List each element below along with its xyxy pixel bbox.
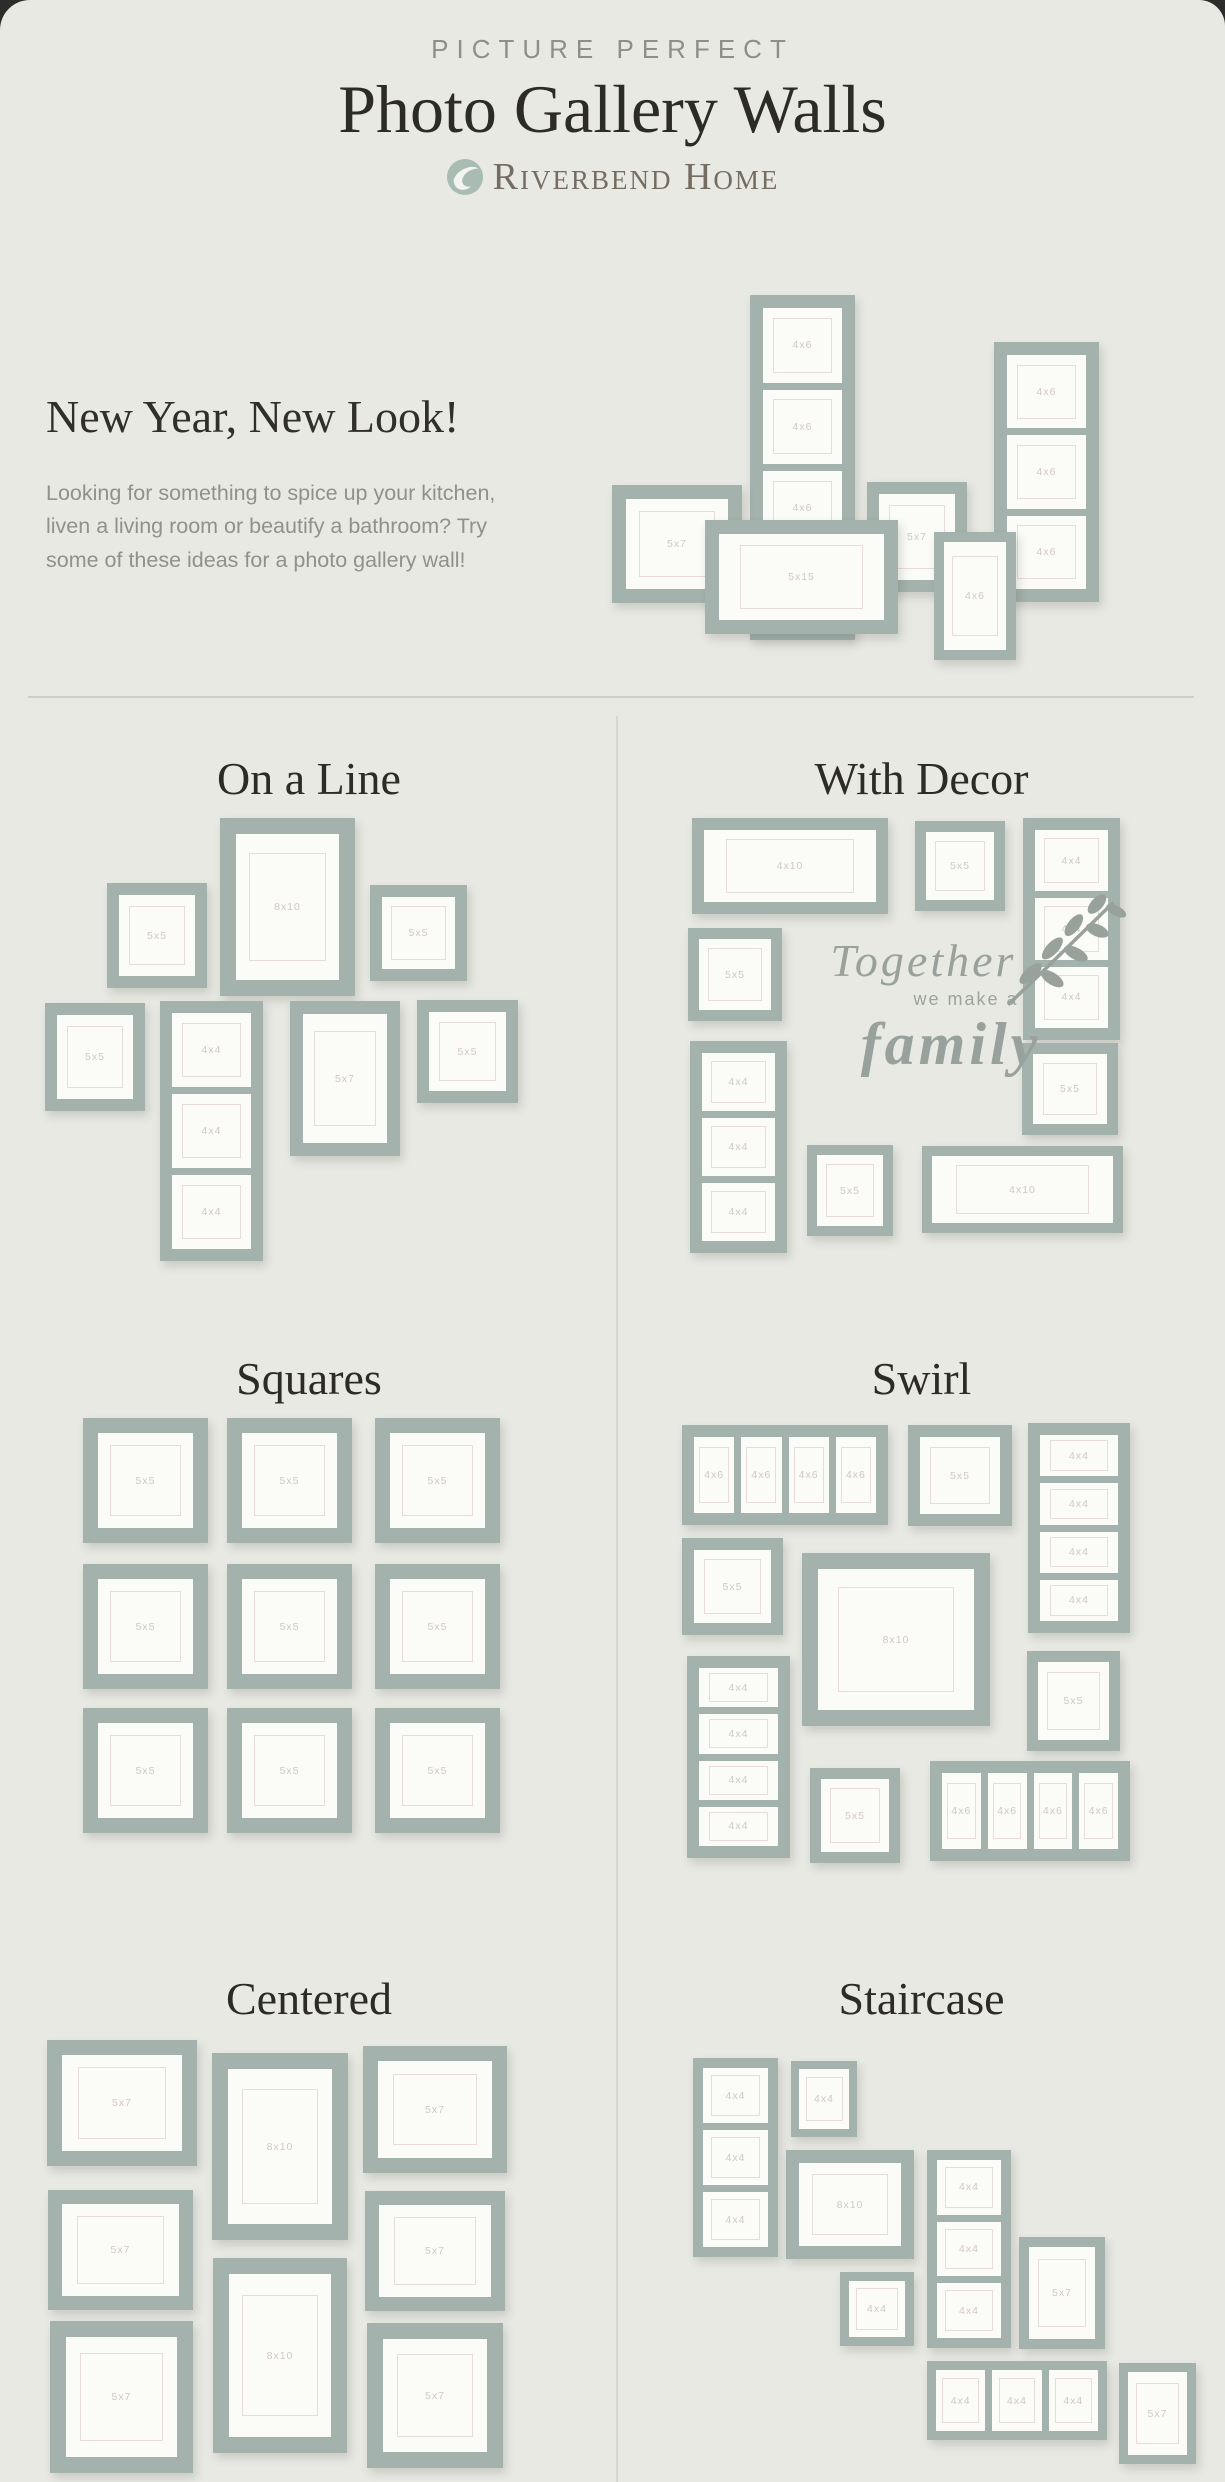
picture-frame: 5x7 [47, 2040, 197, 2166]
picture-frame: 4x44x44x4 [1023, 818, 1120, 1040]
frame-size-label: 5x5 [85, 1051, 105, 1063]
picture-frame: 5x5 [688, 928, 782, 1021]
frame-opening: 8x10 [799, 2163, 901, 2246]
frame-opening: 4x4 [1035, 898, 1108, 959]
picture-frame: 5x5 [682, 1538, 783, 1635]
frame-size-label: 4x6 [1037, 546, 1057, 558]
frame-opening: 5x5 [390, 1433, 485, 1528]
frame-opening: 4x6 [1079, 1773, 1118, 1849]
frame-size-label: 8x10 [267, 2141, 294, 2153]
frame-size-label: 4x4 [959, 2243, 979, 2255]
picture-frame: 4x4 [791, 2061, 857, 2137]
picture-frame: 4x44x44x4 [690, 1041, 787, 1253]
frame-opening: 5x5 [57, 1015, 133, 1099]
frame-opening: 4x4 [936, 2370, 985, 2431]
intro-body: Looking for something to spice up your k… [46, 477, 524, 577]
frame-opening: 4x4 [937, 2283, 1001, 2338]
frame-opening: 4x10 [932, 1156, 1113, 1223]
frame-size-label: 4x4 [729, 1728, 749, 1740]
frame-size-label: 4x4 [1069, 1594, 1089, 1606]
frame-opening: 4x6 [836, 1437, 876, 1513]
frame-size-label: 4x6 [751, 1469, 771, 1481]
frame-opening: 5x5 [699, 939, 771, 1010]
header: PICTURE PERFECT Photo Gallery Walls Rive… [0, 34, 1225, 199]
frame-size-label: 5x7 [425, 2390, 445, 2402]
frame-opening: 4x4 [703, 2130, 768, 2185]
frame-size-label: 5x7 [1148, 2408, 1168, 2420]
picture-frame: 5x5 [810, 1768, 900, 1863]
frame-opening: 5x5 [390, 1579, 485, 1674]
frame-opening: 5x5 [390, 1723, 485, 1818]
frame-size-label: 5x5 [428, 1475, 448, 1487]
picture-frame: 4x44x44x44x4 [687, 1656, 790, 1858]
picture-frame: 5x5 [83, 1418, 208, 1543]
frame-opening: 4x4 [1040, 1435, 1118, 1476]
wall-swirl: 4x64x64x64x65x54x44x44x44x45x58x104x44x4… [682, 1418, 1130, 1863]
frame-opening: 4x6 [1007, 516, 1086, 589]
decal-line-together: Together [796, 934, 1051, 987]
frame-opening: 4x4 [172, 1094, 251, 1168]
frame-opening: 5x5 [242, 1433, 337, 1528]
picture-frame: 4x64x64x64x6 [682, 1425, 888, 1525]
frame-opening: 5x5 [926, 832, 994, 900]
frame-opening: 4x4 [1049, 2370, 1098, 2431]
infographic-card: PICTURE PERFECT Photo Gallery Walls Rive… [0, 0, 1225, 2482]
frame-opening: 8x10 [229, 2274, 331, 2437]
frame-size-label: 5x5 [136, 1621, 156, 1633]
frame-size-label: 4x6 [799, 1469, 819, 1481]
frame-opening: 5x5 [98, 1579, 193, 1674]
frame-opening: 4x4 [849, 2281, 905, 2337]
frame-size-label: 5x5 [950, 1470, 970, 1482]
picture-frame: 5x5 [375, 1708, 500, 1833]
frame-opening: 5x5 [817, 1155, 883, 1226]
picture-frame: 4x10 [692, 818, 888, 914]
frame-opening: 4x4 [703, 2068, 768, 2123]
frame-opening: 4x4 [1040, 1532, 1118, 1573]
frame-opening: 4x4 [172, 1175, 251, 1249]
frame-opening: 5x7 [383, 2339, 487, 2452]
frame-size-label: 4x4 [202, 1125, 222, 1137]
frame-opening: 5x7 [62, 2204, 179, 2296]
section-title-with-decor: With Decor [814, 752, 1028, 808]
frame-size-label: 5x5 [723, 1581, 743, 1593]
frame-size-label: 4x6 [997, 1805, 1017, 1817]
frame-size-label: 4x6 [846, 1469, 866, 1481]
frame-opening: 4x10 [704, 830, 876, 902]
frame-opening: 4x6 [694, 1437, 734, 1513]
section-title-centered: Centered [226, 1972, 392, 2028]
picture-frame: 4x6 [934, 532, 1016, 660]
picture-frame: 5x5 [375, 1564, 500, 1689]
frame-size-label: 5x5 [409, 927, 429, 939]
frame-opening: 4x6 [789, 1437, 829, 1513]
picture-frame: 4x44x44x44x4 [1028, 1423, 1130, 1633]
frame-size-label: 4x6 [1037, 466, 1057, 478]
frame-size-label: 5x7 [1052, 2287, 1072, 2299]
section-on-a-line: On a Line 5x58x105x55x54x44x44x45x75x5 [0, 700, 618, 1330]
frame-opening: 5x5 [1038, 1662, 1109, 1740]
picture-frame: 5x5 [83, 1708, 208, 1833]
frame-size-label: 4x4 [729, 1774, 749, 1786]
frame-size-label: 4x4 [726, 2214, 746, 2226]
page-title: Photo Gallery Walls [0, 71, 1225, 147]
frame-opening: 4x6 [741, 1437, 781, 1513]
frame-size-label: 4x6 [793, 421, 813, 433]
wall-on-a-line: 5x58x105x55x54x44x44x45x75x5 [45, 818, 518, 1263]
picture-frame: 5x5 [370, 885, 467, 981]
picture-frame: 5x5 [375, 1418, 500, 1543]
section-title-staircase: Staircase [838, 1972, 1004, 2028]
frame-size-label: 4x6 [1037, 386, 1057, 398]
frame-size-label: 4x4 [951, 2395, 971, 2407]
frame-opening: 5x5 [242, 1723, 337, 1818]
frame-size-label: 4x6 [951, 1805, 971, 1817]
frame-opening: 5x5 [119, 895, 195, 976]
picture-frame: 8x10 [802, 1553, 990, 1726]
picture-frame: 5x7 [1119, 2363, 1196, 2464]
frame-size-label: 4x4 [1062, 855, 1082, 867]
wall-staircase: 4x44x44x44x48x104x44x44x44x45x74x44x44x4… [693, 2038, 1196, 2468]
section-squares: Squares 5x55x55x55x55x55x55x55x55x5 [0, 1330, 618, 1960]
intro-heading: New Year, New Look! [46, 390, 524, 443]
frame-size-label: 5x5 [458, 1046, 478, 1058]
frame-size-label: 4x4 [726, 2090, 746, 2102]
frame-size-label: 5x5 [280, 1475, 300, 1487]
picture-frame: 5x5 [107, 883, 207, 988]
frame-opening: 4x4 [699, 1668, 778, 1707]
picture-frame: 5x7 [48, 2190, 193, 2310]
frame-size-label: 4x6 [1089, 1805, 1109, 1817]
frame-size-label: 8x10 [837, 2199, 864, 2211]
frame-opening: 4x6 [1007, 355, 1086, 428]
frame-opening: 4x4 [937, 2160, 1001, 2215]
intro-block: New Year, New Look! Looking for somethin… [46, 390, 524, 577]
picture-frame: 5x15 [705, 520, 898, 634]
frame-size-label: 5x5 [280, 1621, 300, 1633]
frame-opening: 4x4 [1035, 967, 1108, 1028]
layout-grid: On a Line 5x58x105x55x54x44x44x45x75x5 W… [0, 700, 1225, 2482]
picture-frame: 5x5 [417, 1000, 518, 1103]
frame-opening: 4x4 [937, 2222, 1001, 2277]
frame-size-label: 4x6 [704, 1469, 724, 1481]
picture-frame: 8x10 [220, 818, 355, 996]
picture-frame: 4x44x44x4 [160, 1001, 263, 1261]
picture-frame: 5x5 [227, 1564, 352, 1689]
frame-opening: 4x4 [1040, 1483, 1118, 1524]
frame-opening: 5x7 [1128, 2372, 1187, 2455]
frame-size-label: 5x7 [112, 2391, 132, 2403]
frame-size-label: 4x4 [1062, 991, 1082, 1003]
section-title-on-a-line: On a Line [217, 752, 401, 808]
picture-frame: 5x5 [1022, 1043, 1118, 1135]
frame-size-label: 4x6 [793, 339, 813, 351]
frame-size-label: 5x15 [788, 571, 815, 583]
picture-frame: 8x10 [786, 2150, 914, 2259]
frame-size-label: 5x7 [667, 538, 687, 550]
frame-opening: 4x4 [702, 1118, 775, 1176]
frame-size-label: 5x7 [335, 1073, 355, 1085]
frame-size-label: 4x4 [729, 1141, 749, 1153]
frame-opening: 5x7 [1029, 2247, 1095, 2339]
frame-size-label: 5x7 [907, 531, 927, 543]
frame-opening: 4x4 [1040, 1580, 1118, 1621]
frame-opening: 5x5 [920, 1437, 1000, 1514]
picture-frame: 5x7 [1019, 2237, 1105, 2349]
picture-frame: 5x5 [908, 1425, 1012, 1526]
frame-size-label: 4x6 [965, 590, 985, 602]
section-title-swirl: Swirl [872, 1352, 972, 1408]
frame-size-label: 5x5 [845, 1810, 865, 1822]
frame-size-label: 4x4 [1069, 1498, 1089, 1510]
frame-size-label: 5x5 [136, 1765, 156, 1777]
frame-opening: 5x5 [429, 1012, 506, 1091]
frame-opening: 5x7 [378, 2061, 492, 2158]
frame-size-label: 4x4 [202, 1206, 222, 1218]
frame-opening: 4x6 [1007, 435, 1086, 508]
picture-frame: 4x44x44x4 [693, 2058, 778, 2257]
frame-opening: 5x7 [66, 2337, 177, 2457]
picture-frame: 5x7 [50, 2321, 193, 2473]
frame-opening: 5x5 [821, 1779, 889, 1852]
frame-size-label: 5x5 [840, 1185, 860, 1197]
picture-frame: 5x7 [363, 2046, 507, 2173]
section-swirl: Swirl 4x64x64x64x65x54x44x44x44x45x58x10… [618, 1330, 1225, 1960]
picture-frame: 5x5 [227, 1418, 352, 1543]
frame-size-label: 5x5 [136, 1475, 156, 1487]
frame-opening: 4x6 [763, 390, 842, 465]
frame-size-label: 4x4 [867, 2303, 887, 2315]
frame-opening: 4x6 [942, 1773, 981, 1849]
frame-size-label: 4x4 [1069, 1450, 1089, 1462]
frame-opening: 5x5 [242, 1579, 337, 1674]
picture-frame: 4x44x44x4 [927, 2150, 1011, 2348]
picture-frame: 5x7 [290, 1001, 400, 1156]
hero-frame-cluster: 4x64x64x64x65x75x155x74x64x64x64x6 [612, 290, 1197, 665]
frame-opening: 5x5 [382, 897, 455, 969]
frame-opening: 4x4 [703, 2192, 768, 2247]
frame-opening: 4x4 [1035, 830, 1108, 891]
frame-size-label: 5x7 [425, 2245, 445, 2257]
frame-opening: 4x6 [1034, 1773, 1073, 1849]
riverbend-logo-icon [446, 158, 484, 196]
picture-frame: 4x10 [922, 1146, 1123, 1233]
picture-frame: 5x5 [807, 1145, 893, 1236]
frame-opening: 5x5 [98, 1433, 193, 1528]
frame-opening: 8x10 [236, 834, 339, 980]
frame-opening: 5x7 [62, 2055, 182, 2151]
frame-opening: 5x15 [719, 534, 884, 620]
frame-size-label: 5x5 [950, 860, 970, 872]
frame-opening: 4x4 [699, 1761, 778, 1800]
frame-size-label: 5x5 [1060, 1083, 1080, 1095]
kicker-text: PICTURE PERFECT [0, 34, 1225, 65]
frame-opening: 4x4 [799, 2069, 849, 2129]
picture-frame: 5x5 [83, 1564, 208, 1689]
frame-size-label: 4x4 [729, 1820, 749, 1832]
frame-opening: 8x10 [818, 1569, 974, 1710]
frame-size-label: 4x4 [1062, 923, 1082, 935]
frame-size-label: 5x5 [428, 1621, 448, 1633]
frame-opening: 5x5 [98, 1723, 193, 1818]
wall-centered: 5x78x105x75x75x78x105x75x7 [47, 2038, 507, 2475]
picture-frame: 5x5 [915, 821, 1005, 911]
picture-frame: 5x7 [365, 2191, 505, 2311]
frame-opening: 5x7 [379, 2205, 491, 2297]
frame-opening: 4x6 [763, 308, 842, 383]
frame-size-label: 4x6 [1043, 1805, 1063, 1817]
frame-size-label: 5x5 [280, 1765, 300, 1777]
frame-size-label: 5x7 [425, 2104, 445, 2116]
frame-opening: 4x4 [699, 1714, 778, 1753]
frame-size-label: 4x4 [959, 2181, 979, 2193]
frame-size-label: 4x4 [814, 2093, 834, 2105]
frame-opening: 4x6 [944, 542, 1006, 650]
frame-size-label: 5x5 [428, 1765, 448, 1777]
frame-size-label: 4x10 [777, 860, 804, 872]
frame-size-label: 5x7 [111, 2244, 131, 2256]
frame-size-label: 4x4 [959, 2305, 979, 2317]
picture-frame: 5x5 [45, 1003, 145, 1111]
frame-opening: 5x5 [694, 1550, 771, 1623]
frame-size-label: 4x4 [729, 1682, 749, 1694]
picture-frame: 5x7 [367, 2323, 503, 2468]
section-with-decor: With Decor [618, 700, 1225, 1330]
frame-size-label: 4x4 [1063, 2395, 1083, 2407]
frame-size-label: 5x5 [725, 969, 745, 981]
frame-size-label: 5x5 [147, 930, 167, 942]
frame-opening: 5x5 [1033, 1054, 1107, 1124]
frame-size-label: 8x10 [267, 2350, 294, 2362]
frame-opening: 4x6 [988, 1773, 1027, 1849]
section-staircase: Staircase 4x44x44x44x48x104x44x44x44x45x… [618, 1960, 1225, 2482]
frame-size-label: 4x4 [729, 1206, 749, 1218]
brand-name: Riverbend Home [493, 155, 780, 199]
frame-size-label: 4x4 [726, 2152, 746, 2164]
frame-opening: 4x4 [702, 1183, 775, 1241]
section-centered: Centered 5x78x105x75x75x78x105x75x7 [0, 1960, 618, 2482]
frame-opening: 4x4 [992, 2370, 1041, 2431]
picture-frame: 5x5 [1027, 1651, 1120, 1751]
wall-with-decor: Together we make a family 4x105x54x44x44… [688, 818, 1123, 1253]
frame-opening: 5x7 [303, 1014, 387, 1143]
frame-size-label: 4x6 [793, 502, 813, 514]
frame-size-label: 8x10 [274, 901, 301, 913]
frame-opening: 4x4 [702, 1053, 775, 1111]
frame-size-label: 4x10 [1009, 1184, 1036, 1196]
frame-size-label: 4x4 [1069, 1546, 1089, 1558]
wall-squares: 5x55x55x55x55x55x55x55x55x5 [83, 1418, 500, 1838]
frame-size-label: 4x4 [202, 1044, 222, 1056]
frame-size-label: 8x10 [883, 1634, 910, 1646]
frame-opening: 4x4 [172, 1013, 251, 1087]
picture-frame: 4x64x64x64x6 [930, 1761, 1130, 1861]
picture-frame: 8x10 [212, 2053, 348, 2240]
picture-frame: 4x4 [840, 2272, 914, 2346]
frame-opening: 8x10 [228, 2069, 332, 2224]
frame-size-label: 4x4 [729, 1076, 749, 1088]
frame-size-label: 4x4 [1007, 2395, 1027, 2407]
frame-opening: 4x4 [699, 1807, 778, 1846]
frame-size-label: 5x5 [1064, 1695, 1084, 1707]
frame-size-label: 5x7 [112, 2097, 132, 2109]
picture-frame: 4x44x44x4 [927, 2361, 1107, 2440]
picture-frame: 8x10 [213, 2258, 347, 2453]
section-title-squares: Squares [236, 1352, 382, 1408]
picture-frame: 5x5 [227, 1708, 352, 1833]
brand-logo-row: Riverbend Home [0, 155, 1225, 199]
horizontal-divider [28, 696, 1194, 698]
